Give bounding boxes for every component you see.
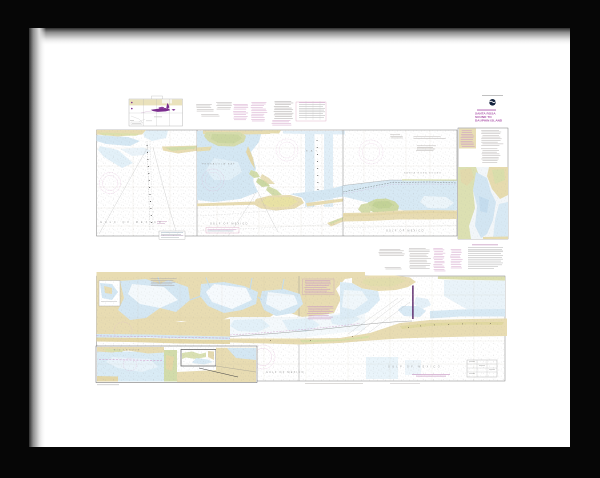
svg-text:DAUPHIN ISLAND: DAUPHIN ISLAND (475, 118, 503, 122)
